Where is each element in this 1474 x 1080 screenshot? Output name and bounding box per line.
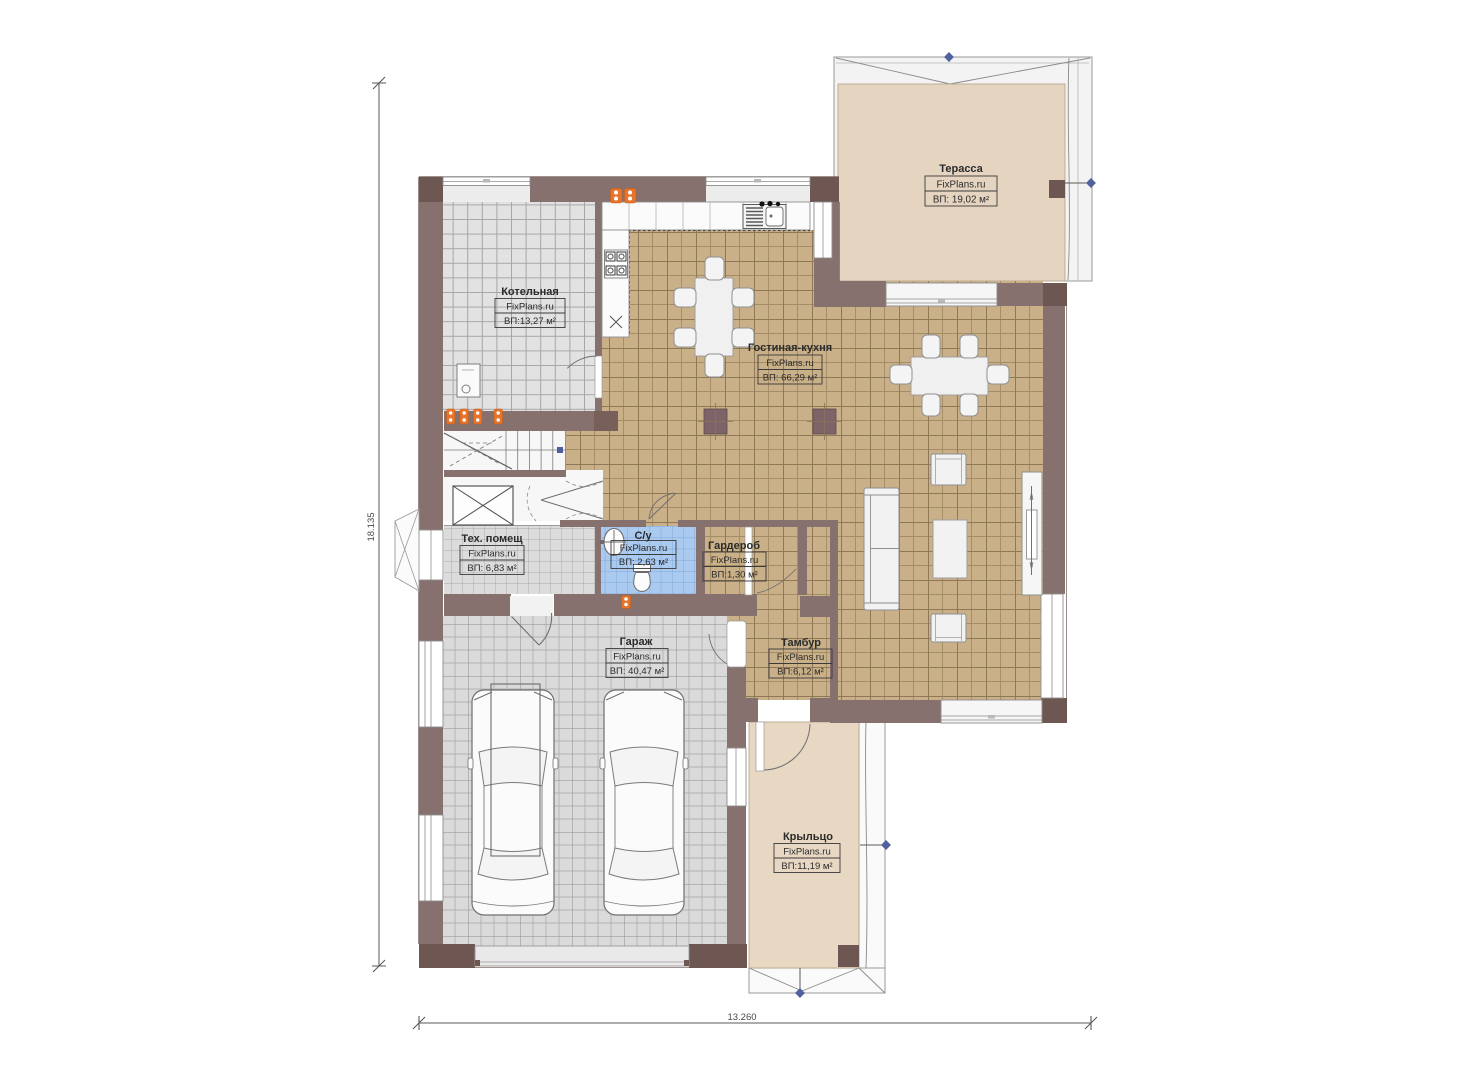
svg-text:13.260: 13.260: [727, 1012, 756, 1023]
svg-text:FixPlans.ru: FixPlans.ru: [468, 549, 516, 560]
svg-text:ВП: 40,47 м²: ВП: 40,47 м²: [610, 666, 665, 677]
svg-text:Котельная: Котельная: [501, 286, 559, 298]
svg-text:FixPlans.ru: FixPlans.ru: [711, 555, 759, 566]
svg-text:FixPlans.ru: FixPlans.ru: [620, 543, 668, 554]
svg-text:ВП:1,30 м²: ВП:1,30 м²: [711, 570, 758, 581]
svg-text:Гараж: Гараж: [620, 636, 653, 648]
svg-text:18.135: 18.135: [366, 512, 377, 541]
svg-text:FixPlans.ru: FixPlans.ru: [783, 847, 831, 858]
svg-text:Тамбур: Тамбур: [781, 637, 821, 649]
svg-text:Тех. помещ: Тех. помещ: [461, 533, 523, 545]
svg-text:ВП:6,12 м²: ВП:6,12 м²: [777, 667, 824, 678]
svg-text:ВП:13,27 м²: ВП:13,27 м²: [504, 316, 556, 327]
svg-text:Крыльцо: Крыльцо: [783, 831, 833, 843]
svg-text:ВП:11,19 м²: ВП:11,19 м²: [781, 861, 832, 872]
svg-text:FixPlans.ru: FixPlans.ru: [766, 358, 814, 369]
svg-text:FixPlans.ru: FixPlans.ru: [777, 652, 825, 663]
svg-text:FixPlans.ru: FixPlans.ru: [613, 652, 661, 663]
svg-text:ВП: 19,02 м²: ВП: 19,02 м²: [933, 195, 990, 206]
svg-text:Терасса: Терасса: [939, 163, 983, 175]
svg-text:ВП: 2,63 м²: ВП: 2,63 м²: [619, 557, 668, 568]
svg-text:FixPlans.ru: FixPlans.ru: [506, 302, 554, 313]
svg-text:FixPlans.ru: FixPlans.ru: [937, 180, 986, 191]
svg-text:Гостиная-кухня: Гостиная-кухня: [748, 342, 832, 354]
svg-text:Гардероб: Гардероб: [708, 540, 760, 552]
svg-text:ВП: 6,83 м²: ВП: 6,83 м²: [467, 563, 516, 574]
svg-text:ВП: 66,29 м²: ВП: 66,29 м²: [763, 373, 818, 384]
